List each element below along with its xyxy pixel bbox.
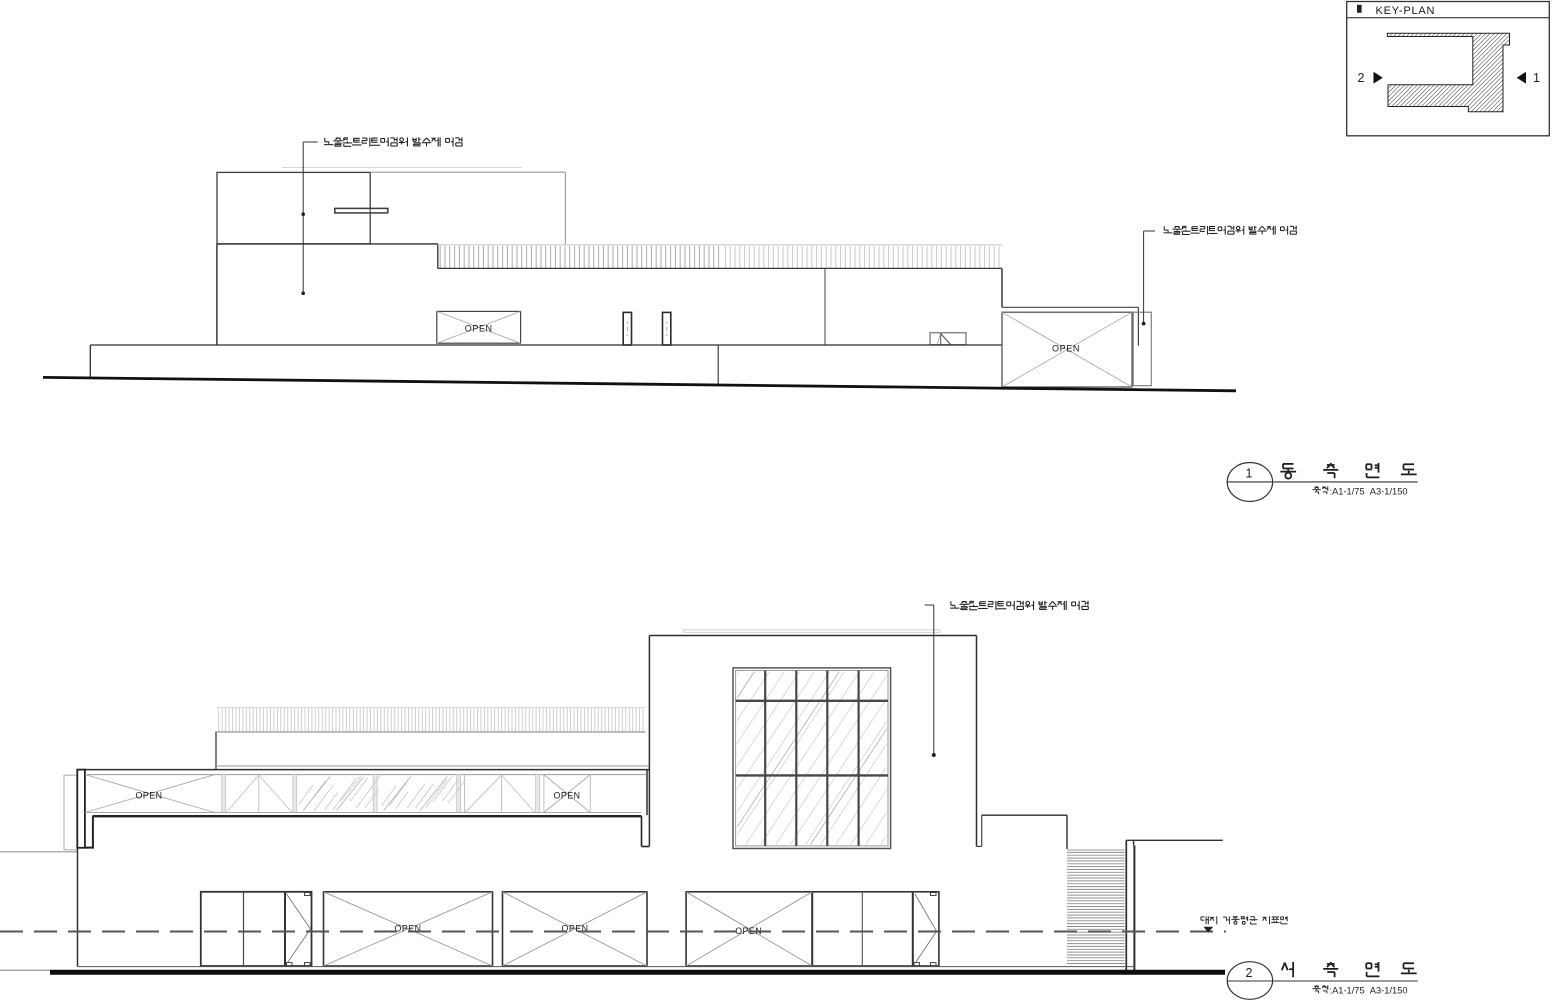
svg-text:OPEN: OPEN — [465, 324, 493, 334]
svg-text::A1-1/75 A3-1/150: :A1-1/75 A3-1/150 — [1330, 487, 1408, 497]
svg-text:KEY-PLAN: KEY-PLAN — [1376, 5, 1436, 17]
svg-text:1: 1 — [1533, 71, 1540, 85]
svg-text:OPEN: OPEN — [554, 791, 581, 801]
svg-text:1: 1 — [1246, 467, 1253, 481]
svg-text:2: 2 — [1246, 966, 1253, 980]
svg-text:OPEN: OPEN — [136, 791, 163, 801]
svg-text::A1-1/75 A3-1/150: :A1-1/75 A3-1/150 — [1330, 986, 1408, 996]
svg-text:OPEN: OPEN — [1052, 344, 1080, 354]
svg-text:2: 2 — [1358, 71, 1365, 85]
